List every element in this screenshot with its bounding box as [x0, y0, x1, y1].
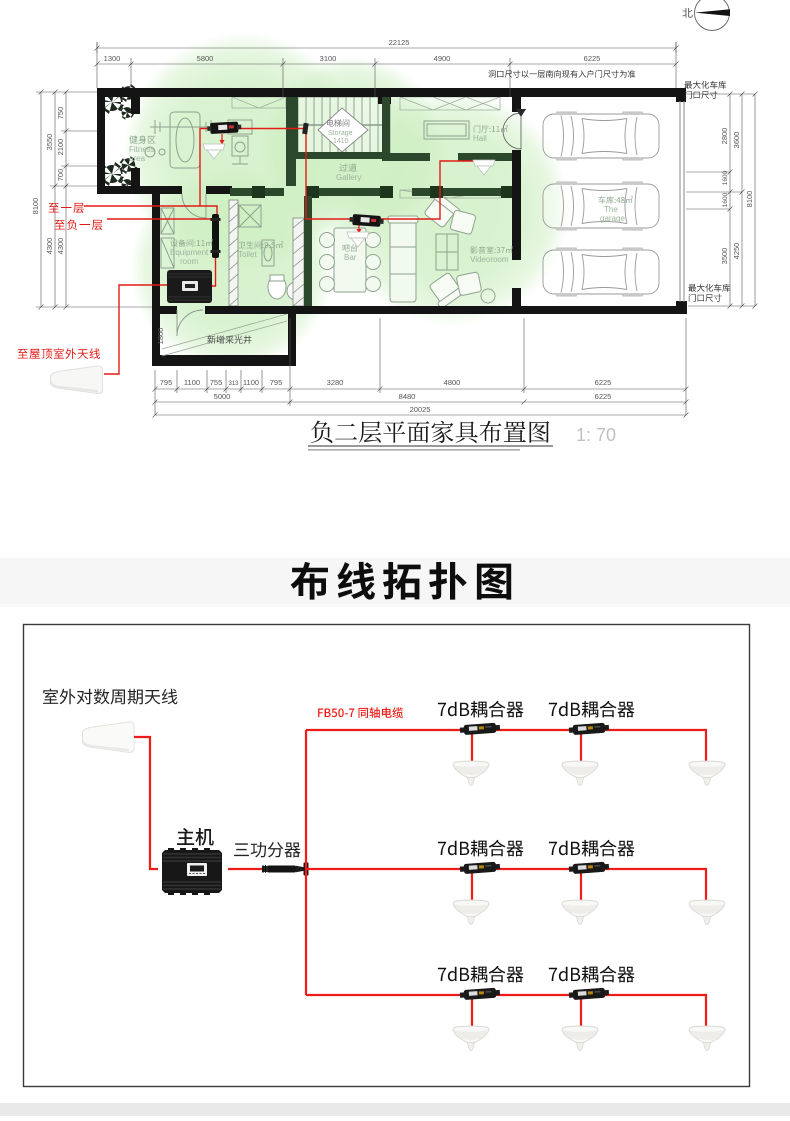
svg-text:8100: 8100 [31, 198, 40, 215]
svg-text:3600: 3600 [732, 132, 741, 149]
svg-text:room: room [180, 257, 199, 266]
svg-text:4250: 4250 [732, 243, 741, 260]
svg-text:garage: garage [600, 214, 625, 223]
svg-text:Equipment: Equipment [170, 248, 209, 257]
svg-text:area: area [129, 154, 146, 163]
svg-text:Hall: Hall [473, 134, 487, 143]
svg-text:1800: 1800 [156, 328, 165, 345]
svg-text:Fitness: Fitness [129, 145, 155, 154]
svg-text:The: The [604, 205, 618, 214]
svg-text:313: 313 [228, 381, 239, 387]
svg-text:Gallery: Gallery [336, 173, 361, 182]
svg-text:795: 795 [160, 378, 173, 387]
svg-text:Bar: Bar [344, 253, 357, 262]
svg-text:8480: 8480 [399, 392, 416, 401]
svg-text:6225: 6225 [595, 378, 612, 387]
svg-text:22125: 22125 [389, 38, 410, 47]
svg-text:1300: 1300 [104, 54, 121, 63]
svg-text:5000: 5000 [214, 392, 231, 401]
svg-text:Toilet: Toilet [238, 250, 257, 259]
svg-text:700: 700 [56, 169, 65, 182]
svg-text:8100: 8100 [745, 191, 754, 208]
svg-text:2800: 2800 [720, 128, 729, 145]
svg-text:1100: 1100 [184, 378, 200, 387]
svg-text:4300: 4300 [56, 238, 65, 255]
svg-text:755: 755 [210, 378, 223, 387]
svg-text:795: 795 [270, 378, 283, 387]
svg-text:3500: 3500 [720, 248, 729, 265]
svg-text:1: 70: 1: 70 [576, 425, 616, 445]
svg-text:6225: 6225 [584, 54, 601, 63]
svg-text:1600: 1600 [722, 170, 729, 185]
svg-text:4300: 4300 [45, 238, 54, 255]
svg-text:3280: 3280 [327, 378, 344, 387]
svg-text:1100: 1100 [243, 378, 259, 387]
svg-text:3550: 3550 [45, 134, 54, 151]
svg-text:5800: 5800 [197, 54, 214, 63]
svg-text:3100: 3100 [320, 54, 337, 63]
svg-text:6225: 6225 [595, 392, 612, 401]
svg-text:1410: 1410 [333, 138, 349, 145]
svg-text:Videoroom: Videoroom [470, 255, 509, 264]
svg-text:750: 750 [56, 107, 65, 120]
svg-text:20025: 20025 [410, 405, 431, 414]
svg-text:1600: 1600 [722, 192, 729, 207]
svg-text:Storage: Storage [328, 130, 353, 137]
svg-text:2100: 2100 [56, 139, 65, 156]
svg-text:4800: 4800 [444, 378, 461, 387]
svg-text:4900: 4900 [434, 54, 451, 63]
